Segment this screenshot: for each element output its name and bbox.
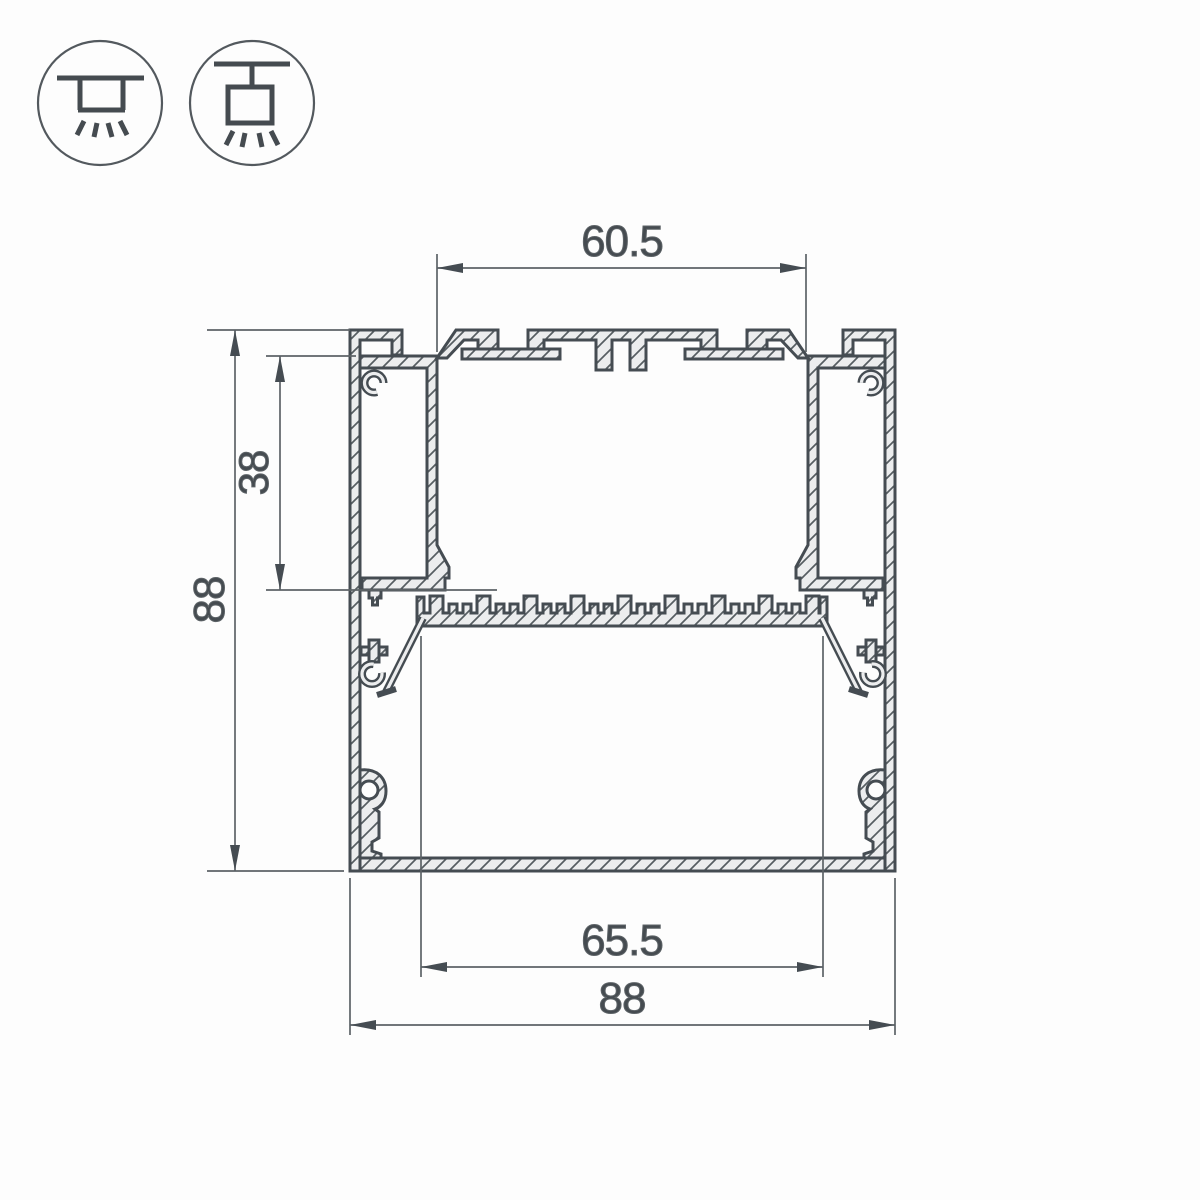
dim-label-overall-width: 88 <box>599 974 646 1023</box>
bottom-base <box>360 858 885 871</box>
technical-drawing-page: 60.5 38 88 65.5 88 <box>0 0 1200 1200</box>
dim-label-overall-height: 88 <box>185 577 234 624</box>
profile-drawing-svg: 60.5 38 88 65.5 88 <box>0 0 1200 1200</box>
top-plate-web-right <box>685 349 783 359</box>
screw-port <box>360 781 378 799</box>
serrated-led-plate <box>417 596 827 626</box>
top-plate-web-left <box>462 349 560 359</box>
screw-port <box>867 781 885 799</box>
dim-label-top-width: 60.5 <box>581 217 663 266</box>
dim-label-channel-depth: 38 <box>230 451 277 496</box>
dim-label-inner-width: 65.5 <box>581 916 663 965</box>
